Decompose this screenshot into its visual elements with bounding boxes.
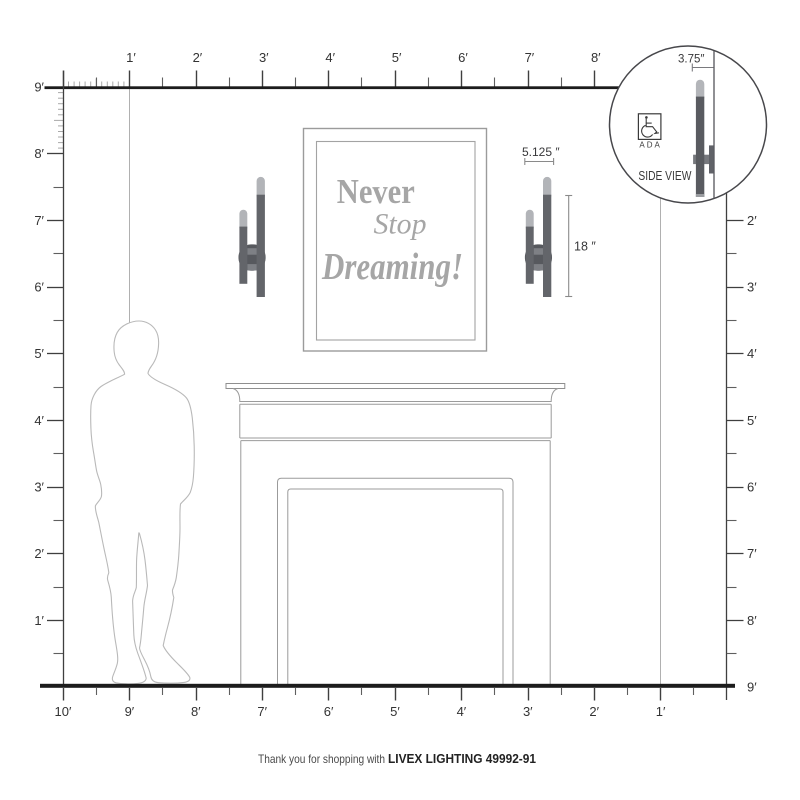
- svg-text:4′: 4′: [457, 704, 467, 719]
- svg-text:3′: 3′: [34, 480, 44, 495]
- svg-text:6′: 6′: [324, 704, 334, 719]
- svg-text:Thank you for shopping with: Thank you for shopping with: [258, 752, 385, 766]
- svg-text:5.125 ″: 5.125 ″: [522, 145, 560, 159]
- svg-text:4′: 4′: [34, 413, 44, 428]
- svg-text:3′: 3′: [523, 704, 533, 719]
- svg-text:2′: 2′: [589, 704, 599, 719]
- svg-text:5′: 5′: [390, 704, 400, 719]
- svg-text:1′: 1′: [34, 613, 44, 628]
- svg-text:9′: 9′: [747, 680, 757, 695]
- svg-text:6′: 6′: [458, 50, 468, 65]
- svg-text:Stop: Stop: [374, 208, 427, 241]
- svg-text:3′: 3′: [259, 50, 269, 65]
- svg-text:8′: 8′: [747, 613, 757, 628]
- svg-text:LIVEX LIGHTING 49992-91: LIVEX LIGHTING 49992-91: [388, 751, 536, 766]
- svg-text:2′: 2′: [193, 50, 203, 65]
- svg-text:8′: 8′: [591, 50, 601, 65]
- svg-text:7′: 7′: [257, 704, 267, 719]
- svg-text:5′: 5′: [392, 50, 402, 65]
- svg-text:ADA: ADA: [639, 141, 660, 150]
- svg-text:7′: 7′: [525, 50, 535, 65]
- svg-text:5′: 5′: [34, 346, 44, 361]
- svg-text:5′: 5′: [747, 413, 757, 428]
- svg-text:3.75″: 3.75″: [678, 54, 704, 66]
- svg-text:7′: 7′: [747, 546, 757, 561]
- svg-text:9′: 9′: [125, 704, 135, 719]
- svg-text:1′: 1′: [126, 50, 136, 65]
- svg-text:1′: 1′: [656, 704, 666, 719]
- svg-text:8′: 8′: [191, 704, 201, 719]
- svg-text:Never: Never: [337, 172, 415, 211]
- svg-text:SIDE VIEW: SIDE VIEW: [638, 169, 691, 183]
- svg-text:8′: 8′: [34, 146, 44, 161]
- svg-text:6′: 6′: [747, 480, 757, 495]
- svg-text:7′: 7′: [34, 213, 44, 228]
- svg-text:3′: 3′: [747, 280, 757, 295]
- svg-text:4′: 4′: [747, 346, 757, 361]
- svg-text:2′: 2′: [34, 546, 44, 561]
- svg-text:6′: 6′: [34, 280, 44, 295]
- svg-text:9′: 9′: [34, 80, 44, 95]
- svg-text:2′: 2′: [747, 213, 757, 228]
- svg-text:18 ″: 18 ″: [574, 240, 596, 254]
- svg-text:10′: 10′: [55, 704, 72, 719]
- svg-text:4′: 4′: [325, 50, 335, 65]
- svg-text:Dreaming!: Dreaming!: [321, 246, 463, 288]
